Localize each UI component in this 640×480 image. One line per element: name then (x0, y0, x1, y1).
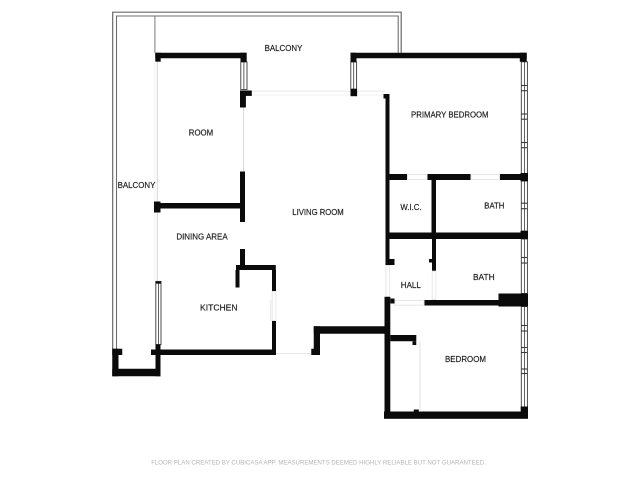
svg-text:W.I.C.: W.I.C. (400, 202, 421, 212)
svg-text:LIVING ROOM: LIVING ROOM (292, 207, 343, 217)
svg-text:BALCONY: BALCONY (265, 43, 303, 53)
svg-text:BALCONY: BALCONY (118, 180, 156, 190)
svg-text:FLOOR PLAN CREATED BY CUBICASA: FLOOR PLAN CREATED BY CUBICASA APP. MEAS… (151, 460, 486, 467)
svg-text:ROOM: ROOM (189, 128, 213, 138)
svg-text:BATH: BATH (473, 272, 495, 282)
svg-text:PRIMARY BEDROOM: PRIMARY BEDROOM (411, 110, 489, 120)
svg-text:DINING AREA: DINING AREA (176, 232, 228, 242)
svg-text:HALL: HALL (401, 280, 421, 290)
svg-text:BATH: BATH (484, 200, 504, 210)
svg-text:BEDROOM: BEDROOM (445, 354, 486, 364)
svg-text:KITCHEN: KITCHEN (200, 303, 238, 313)
